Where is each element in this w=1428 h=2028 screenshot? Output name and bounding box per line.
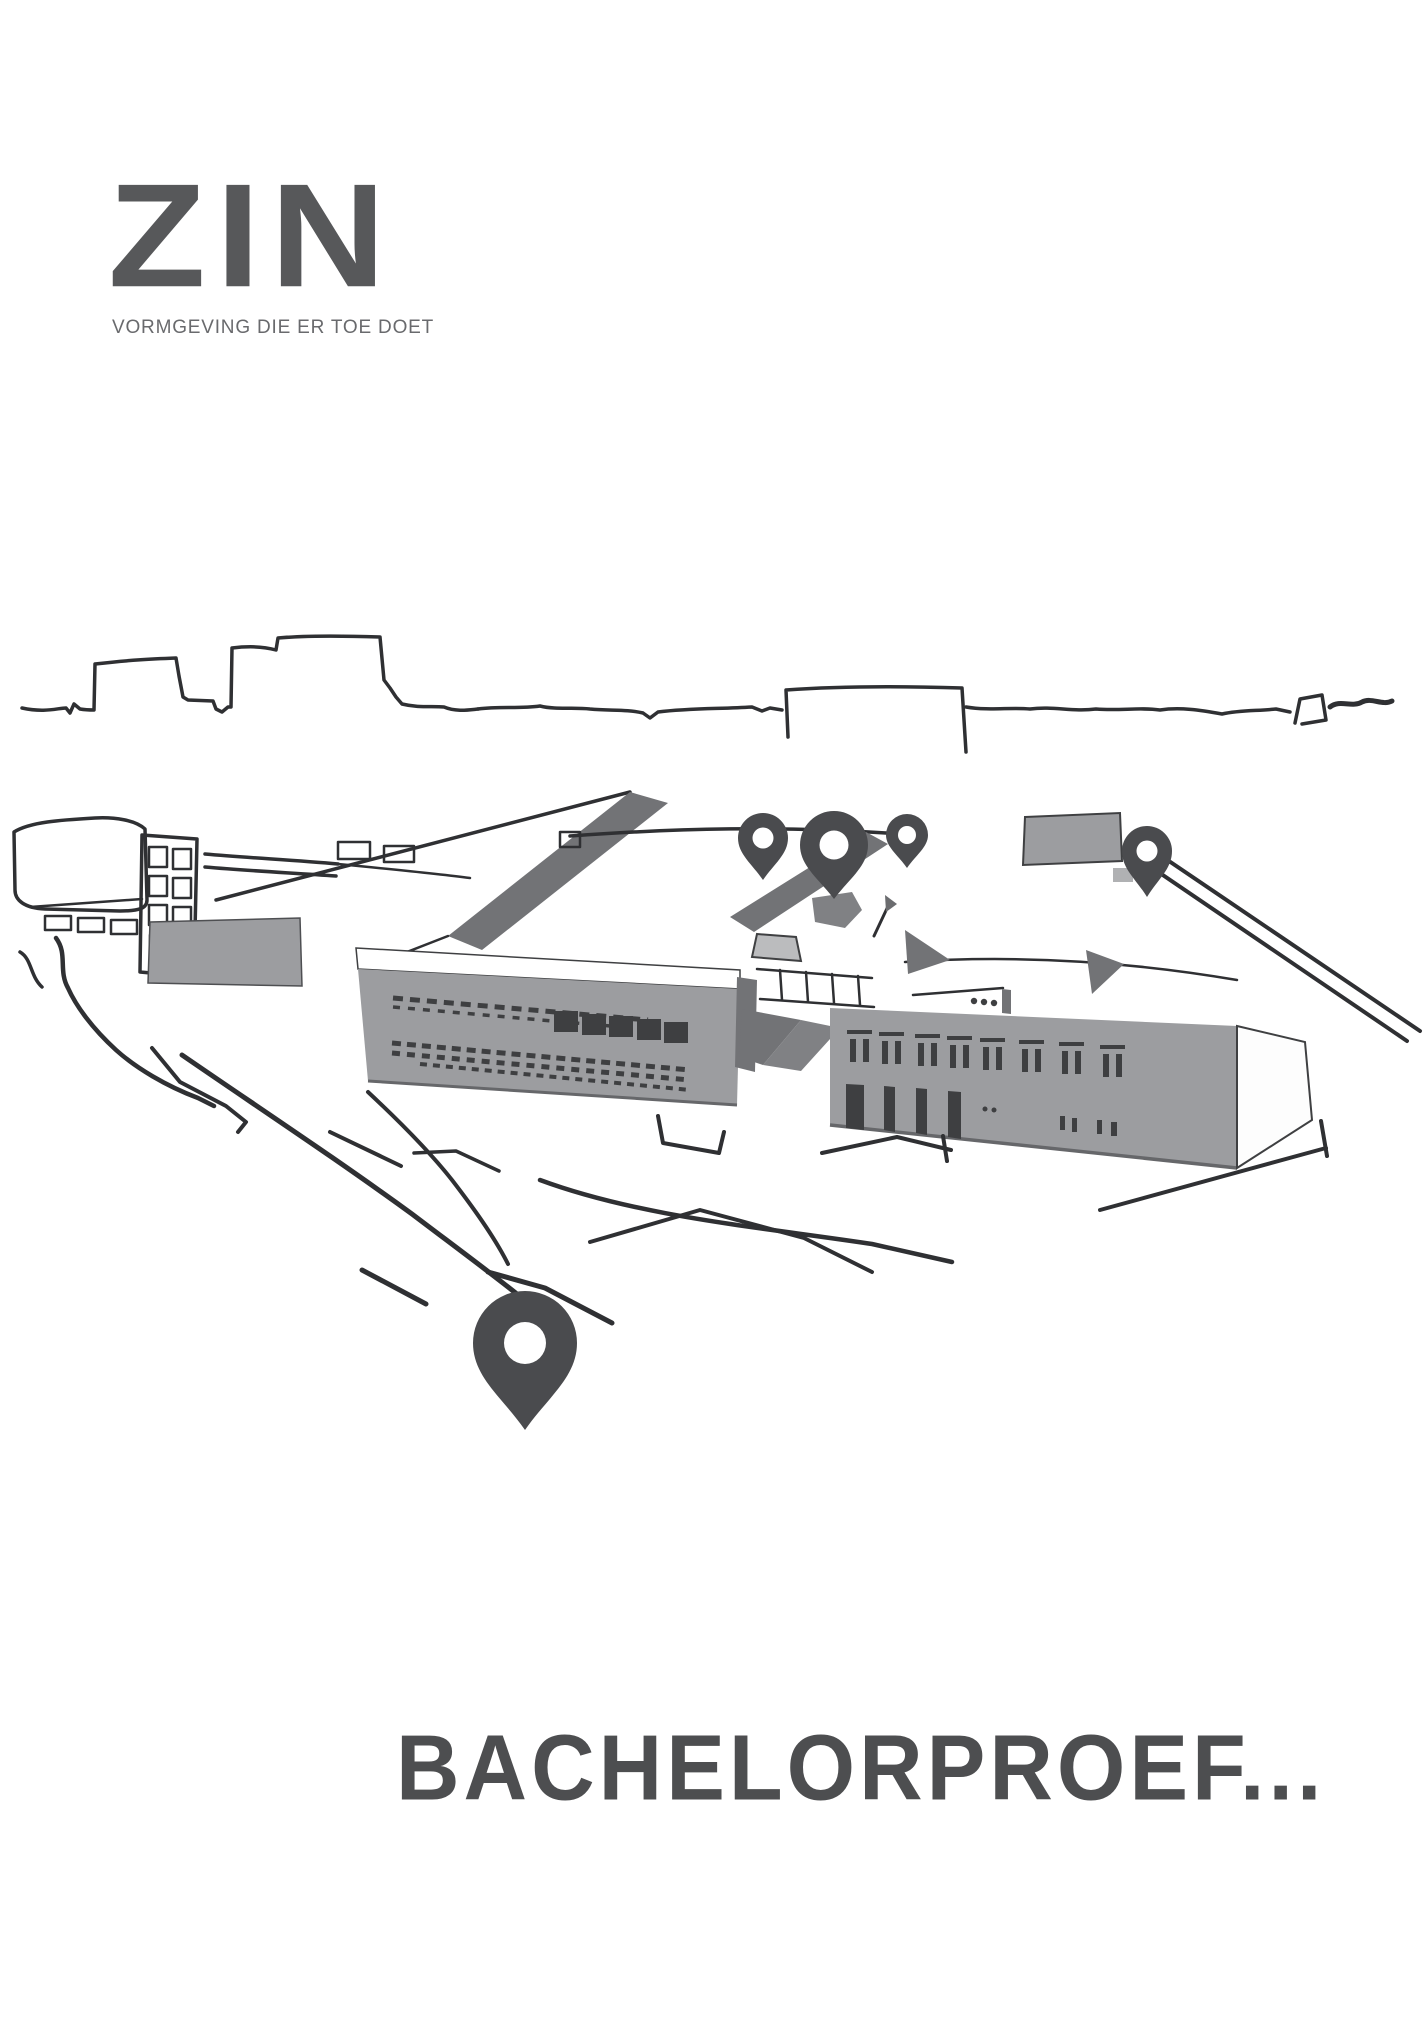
city-skyline xyxy=(22,636,1392,752)
site-illustration xyxy=(0,480,1428,1480)
historic-right-wing xyxy=(830,930,1312,1168)
small-shed xyxy=(812,892,862,928)
brand-logo: ZIN xyxy=(108,162,396,309)
roof-trellis xyxy=(757,969,874,1007)
map-pin-1 xyxy=(738,813,788,880)
roof-shadow-band xyxy=(448,792,668,950)
arrow-marker xyxy=(885,895,897,912)
gray-box-building xyxy=(148,918,302,986)
brand-tagline: VORMGEVING DIE ER TOE DOET xyxy=(112,317,434,339)
cover-title: BACHELORPROEF... xyxy=(396,1722,1325,1814)
right-gray-box xyxy=(1023,813,1122,865)
map-pin-3 xyxy=(886,814,928,868)
map-pin-5 xyxy=(473,1291,577,1430)
skyline-box-building xyxy=(786,687,966,752)
cover-page: ZIN VORMGEVING DIE ER TOE DOET xyxy=(0,0,1428,2028)
map-pin-4 xyxy=(1122,826,1172,897)
